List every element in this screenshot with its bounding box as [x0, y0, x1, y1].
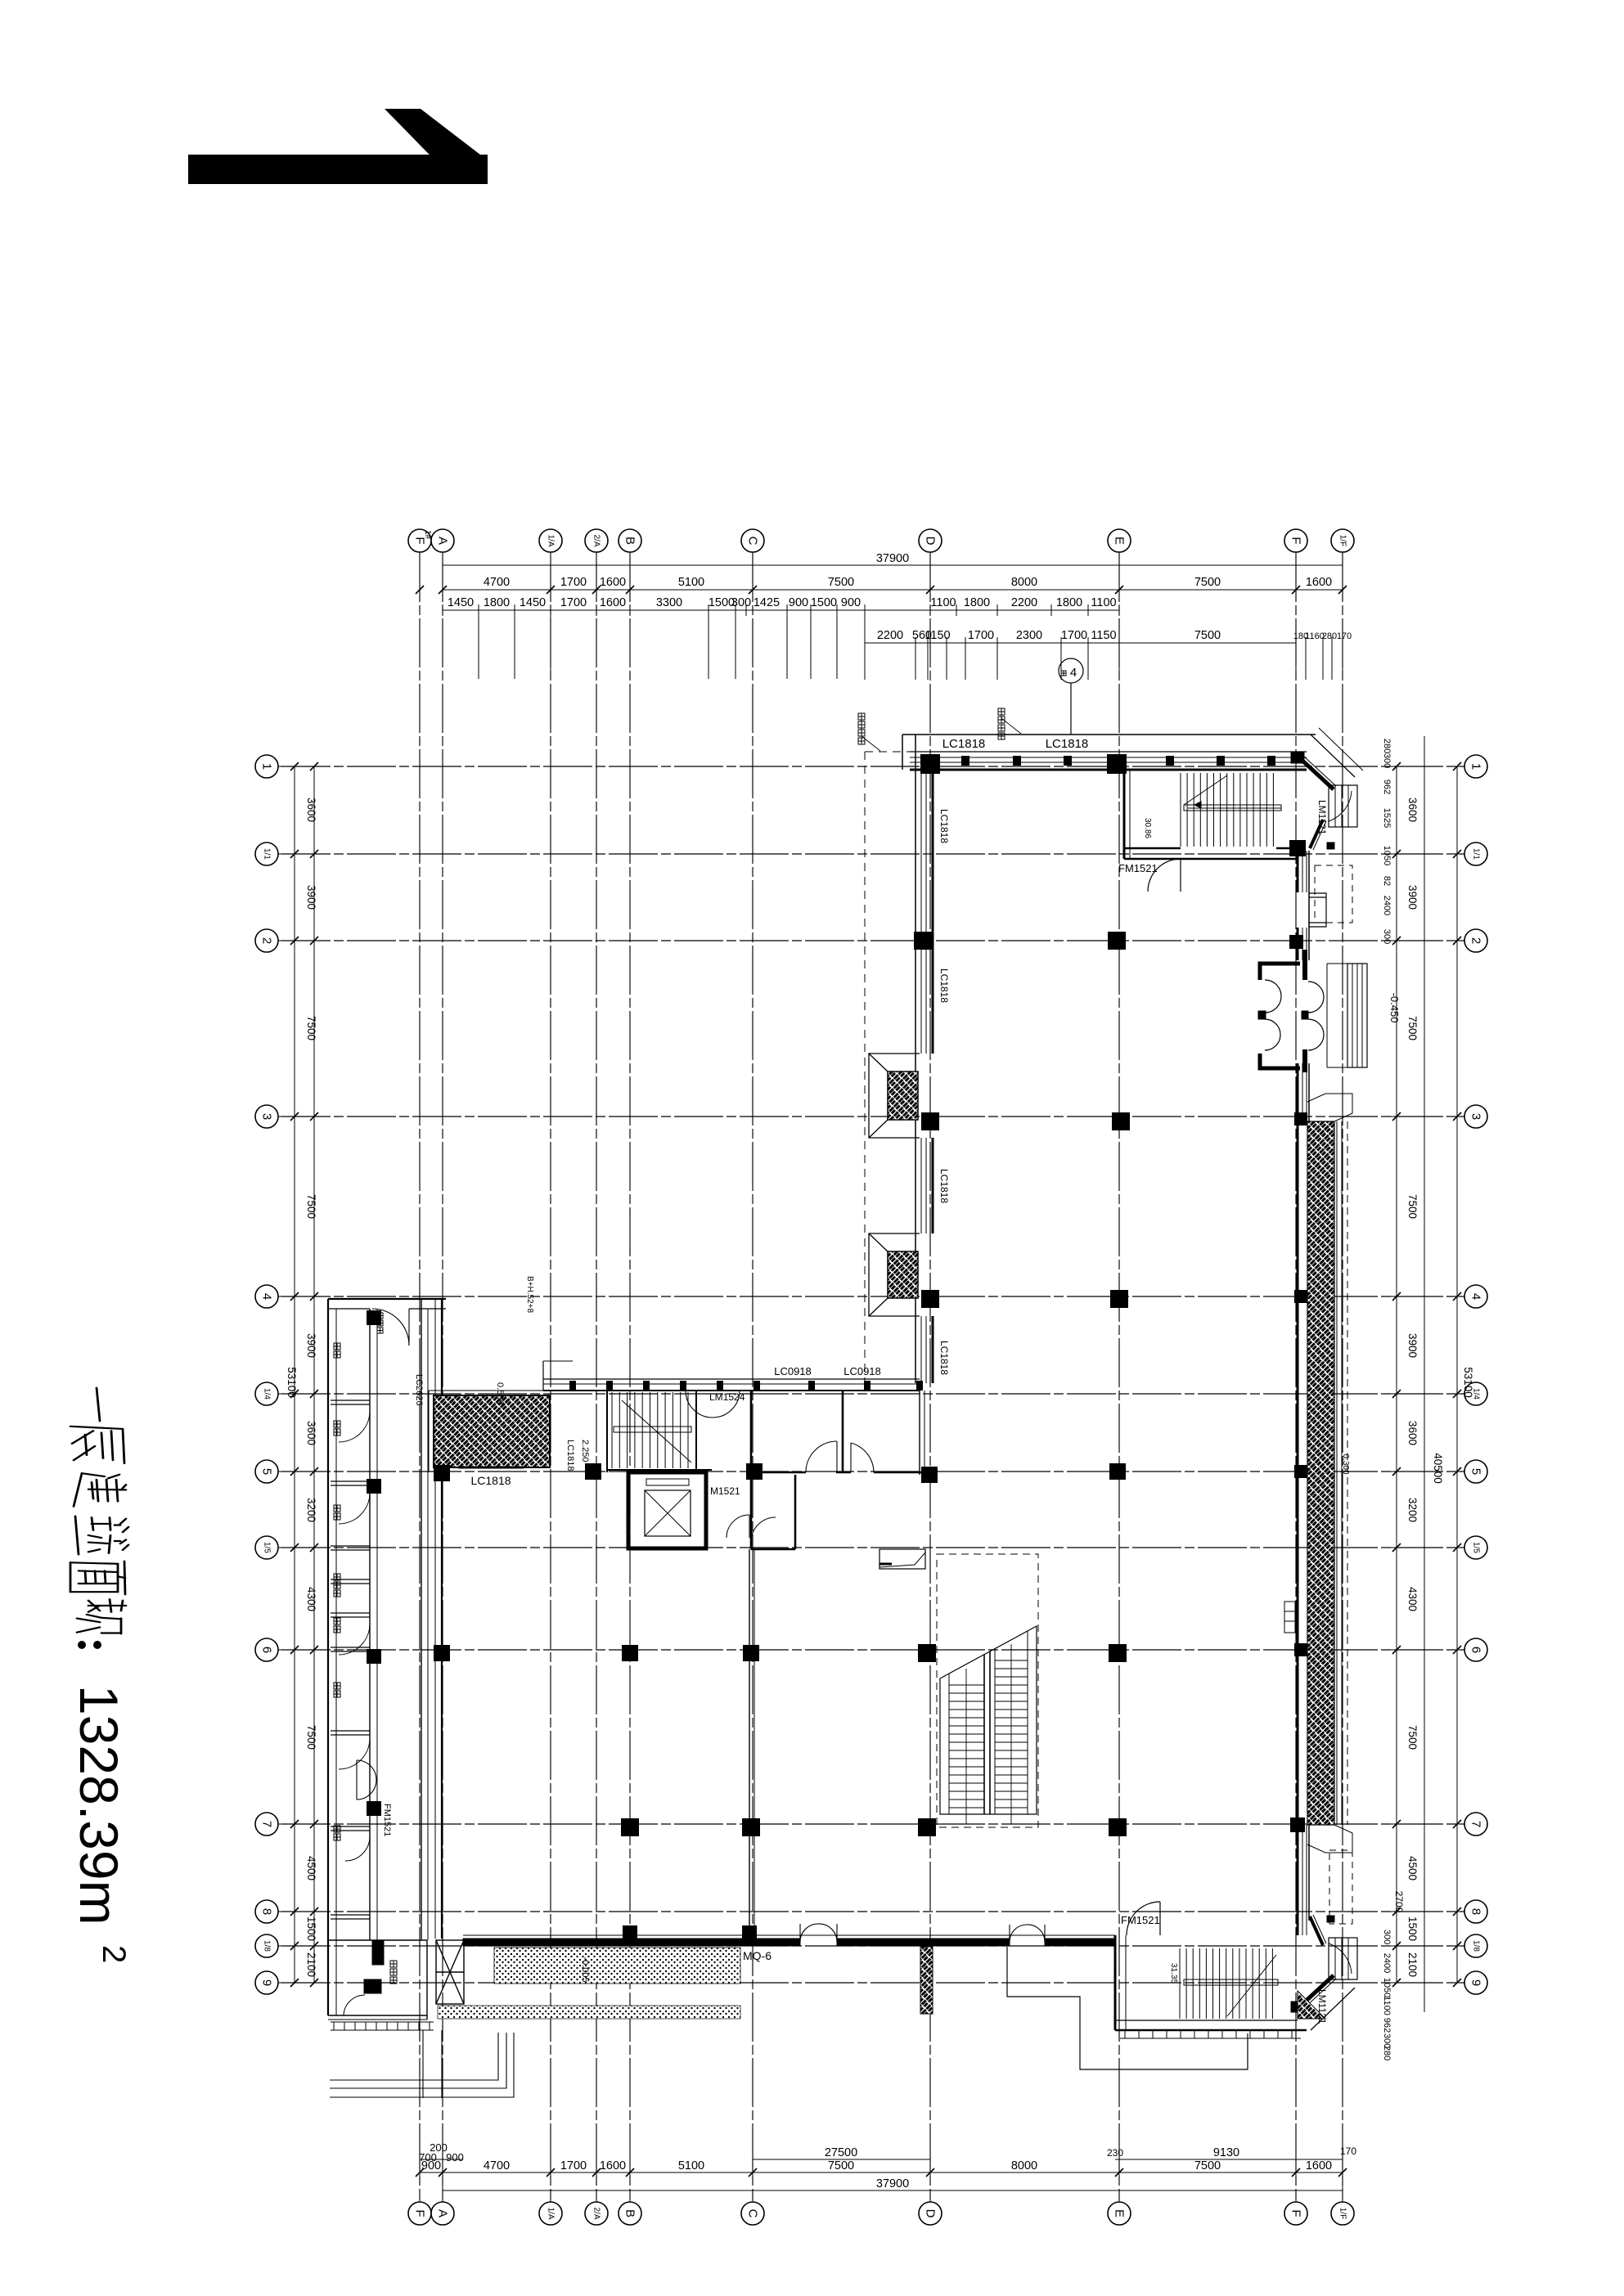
svg-text:9130: 9130 [1213, 2146, 1239, 2159]
svg-text:962: 962 [1382, 2018, 1392, 2033]
svg-text:1328.39m: 1328.39m [69, 1685, 129, 1925]
svg-text:3900: 3900 [1406, 1333, 1419, 1358]
svg-text:1#: 1# [423, 530, 432, 540]
svg-text:7500: 7500 [828, 576, 854, 589]
svg-text:LM1121: LM1121 [1316, 800, 1328, 835]
svg-text:900: 900 [446, 2151, 464, 2163]
svg-text:7500: 7500 [1406, 1016, 1419, 1040]
svg-text:F: F [1289, 2209, 1303, 2217]
svg-text:7500: 7500 [305, 1725, 317, 1750]
svg-text:LC1818: LC1818 [470, 1474, 511, 1487]
svg-text:900: 900 [789, 596, 808, 609]
svg-text:1100: 1100 [1382, 1996, 1392, 2015]
svg-text:1100: 1100 [930, 596, 956, 609]
svg-text:1: 1 [1469, 763, 1483, 770]
svg-text:C: C [746, 537, 760, 546]
svg-text:3200: 3200 [1406, 1498, 1419, 1522]
svg-text:A: A [436, 537, 450, 545]
svg-text:37900: 37900 [876, 2177, 909, 2190]
svg-text:B: B [623, 2209, 637, 2217]
svg-text:1/8: 1/8 [263, 1940, 272, 1952]
svg-text:2: 2 [1469, 937, 1483, 944]
svg-text:1/F: 1/F [1338, 2208, 1347, 2219]
svg-text:27500: 27500 [825, 2146, 857, 2159]
svg-text:1050: 1050 [1382, 846, 1392, 865]
svg-text:1600: 1600 [1306, 2159, 1332, 2172]
svg-text:7500: 7500 [1406, 1194, 1419, 1219]
svg-text:1600: 1600 [600, 576, 626, 589]
svg-text:170: 170 [1337, 631, 1352, 641]
svg-text:1/A: 1/A [547, 534, 556, 546]
svg-text:1700: 1700 [560, 596, 587, 609]
svg-text:300: 300 [1382, 753, 1392, 768]
svg-text:4500: 4500 [305, 1856, 317, 1880]
svg-text:B: B [623, 537, 637, 545]
svg-text:1: 1 [260, 763, 274, 770]
svg-text:6: 6 [260, 1647, 274, 1653]
svg-text:8000: 8000 [1011, 576, 1037, 589]
svg-text:4700: 4700 [484, 576, 510, 589]
svg-text:1525: 1525 [1382, 808, 1392, 828]
svg-text:4: 4 [260, 1293, 274, 1300]
svg-text:-0.005: -0.005 [580, 1957, 590, 1982]
svg-text:2: 2 [96, 1945, 132, 1963]
svg-text:LC1818: LC1818 [565, 1440, 575, 1472]
svg-text:3600: 3600 [305, 798, 317, 822]
svg-text:1050: 1050 [1382, 1978, 1392, 1997]
svg-text:FM1521: FM1521 [382, 1804, 392, 1836]
svg-text:E: E [1113, 537, 1127, 545]
svg-text:300: 300 [1382, 929, 1392, 944]
svg-text:7500: 7500 [305, 1194, 317, 1219]
svg-text:LC0918: LC0918 [774, 1365, 812, 1377]
svg-text:1100: 1100 [1091, 596, 1116, 609]
svg-text:M1521: M1521 [710, 1485, 740, 1497]
svg-text:MQ-6: MQ-6 [743, 1949, 772, 1962]
svg-text:37900: 37900 [876, 552, 909, 565]
svg-text:7500: 7500 [828, 2159, 854, 2172]
svg-text:7: 7 [1469, 1821, 1483, 1827]
svg-text:4300: 4300 [305, 1587, 317, 1611]
svg-text:2: 2 [260, 937, 274, 944]
svg-text:280: 280 [1322, 631, 1337, 641]
svg-text:3900: 3900 [1406, 885, 1419, 910]
svg-text:1/8: 1/8 [1472, 1940, 1481, 1952]
svg-text:7: 7 [260, 1821, 274, 1827]
svg-text:9: 9 [1469, 1979, 1483, 1986]
svg-text:4700: 4700 [484, 2159, 510, 2172]
svg-text:1700: 1700 [560, 2159, 587, 2172]
svg-text:300: 300 [731, 596, 751, 609]
svg-text:A: A [436, 2209, 450, 2217]
svg-text:LM1524: LM1524 [709, 1391, 745, 1403]
svg-text:F: F [413, 2209, 427, 2217]
svg-text:LC1818: LC1818 [942, 737, 986, 751]
svg-text:280: 280 [1382, 739, 1392, 753]
svg-text:FM1521: FM1521 [1121, 1914, 1160, 1926]
svg-text:3: 3 [260, 1113, 274, 1120]
svg-text:1/1: 1/1 [263, 848, 272, 860]
svg-text:5100: 5100 [678, 576, 704, 589]
svg-text:1800: 1800 [964, 596, 990, 609]
svg-text:1/4: 1/4 [263, 1388, 272, 1400]
svg-text:D: D [924, 537, 938, 546]
svg-text:1450: 1450 [520, 596, 546, 609]
svg-text:LC1818: LC1818 [938, 1169, 950, 1203]
svg-text:D: D [924, 2209, 938, 2218]
svg-text:2100: 2100 [1406, 1952, 1419, 1977]
svg-text:LM1121: LM1121 [1316, 1989, 1328, 2024]
svg-text:4500: 4500 [1406, 1856, 1419, 1880]
svg-text:962: 962 [1382, 780, 1392, 794]
svg-text:2/A: 2/A [592, 2207, 601, 2219]
svg-text:1425: 1425 [754, 596, 780, 609]
svg-text:53100: 53100 [1462, 1367, 1474, 1398]
svg-text:0.500: 0.500 [495, 1382, 505, 1405]
svg-text:5: 5 [260, 1468, 274, 1475]
svg-text:LC0918: LC0918 [843, 1365, 881, 1377]
svg-text:2/A: 2/A [592, 534, 601, 546]
svg-text:3300: 3300 [656, 596, 682, 609]
svg-text:6: 6 [1469, 1647, 1483, 1653]
svg-text:1/5: 1/5 [1472, 1542, 1481, 1553]
svg-text:7500: 7500 [305, 1016, 317, 1040]
svg-text:1600: 1600 [600, 596, 626, 609]
svg-text:900: 900 [841, 596, 861, 609]
svg-text:-0.450: -0.450 [1388, 993, 1401, 1023]
svg-text:40500: 40500 [1432, 1453, 1444, 1484]
svg-text:8: 8 [260, 1908, 274, 1915]
svg-text:LC1818: LC1818 [938, 1341, 950, 1375]
svg-text:7500: 7500 [1194, 2159, 1221, 2172]
svg-text:2400: 2400 [1382, 1953, 1392, 1973]
svg-text:LC2626: LC2626 [414, 1374, 424, 1406]
svg-text:7500: 7500 [1194, 576, 1221, 589]
svg-text:2200: 2200 [877, 629, 903, 642]
svg-text:F: F [1289, 537, 1303, 544]
svg-text:C: C [746, 2209, 760, 2218]
svg-text:3900: 3900 [305, 885, 317, 910]
svg-text:31.35: 31.35 [1169, 1963, 1178, 1984]
svg-text:900: 900 [421, 2159, 441, 2172]
svg-text:2100: 2100 [305, 1952, 317, 1977]
svg-text:3200: 3200 [305, 1498, 317, 1522]
svg-text:8000: 8000 [1011, 2159, 1037, 2172]
svg-text:4: 4 [1469, 1293, 1483, 1300]
svg-text:3900: 3900 [305, 1333, 317, 1358]
svg-text:4300: 4300 [1406, 1587, 1419, 1611]
svg-text:3600: 3600 [305, 1421, 317, 1445]
svg-text:3600: 3600 [1406, 1421, 1419, 1445]
svg-text:1/F: 1/F [1338, 535, 1347, 546]
svg-text:4: 4 [1070, 666, 1077, 680]
svg-text:280: 280 [1382, 2046, 1392, 2060]
svg-text:2400: 2400 [1382, 896, 1392, 915]
svg-text:1600: 1600 [600, 2159, 626, 2172]
svg-text:2200: 2200 [1011, 596, 1037, 609]
svg-text:7500: 7500 [1406, 1725, 1419, 1750]
svg-text:1150: 1150 [1091, 629, 1116, 642]
svg-text:LC1818: LC1818 [938, 809, 950, 843]
svg-text:1500: 1500 [811, 596, 837, 609]
svg-text:1/A: 1/A [547, 2207, 556, 2219]
svg-text:E: E [1113, 2209, 1127, 2217]
svg-text:170: 170 [1340, 2145, 1356, 2157]
svg-text:9: 9 [260, 1979, 274, 1986]
svg-text:1800: 1800 [1056, 596, 1082, 609]
svg-text:1500: 1500 [305, 1916, 317, 1941]
svg-text:0.300: 0.300 [1341, 1454, 1350, 1474]
svg-text:230: 230 [1107, 2147, 1123, 2159]
svg-text:82: 82 [1382, 876, 1392, 886]
svg-text:7500: 7500 [1194, 629, 1221, 642]
svg-text:5100: 5100 [678, 2159, 704, 2172]
svg-text:LC1818: LC1818 [1046, 737, 1089, 751]
svg-text:1700: 1700 [968, 629, 994, 642]
svg-text:3600: 3600 [1406, 798, 1419, 822]
svg-text:1450: 1450 [448, 596, 474, 609]
svg-text:30.86: 30.86 [1143, 818, 1152, 838]
svg-text:2300: 2300 [1016, 629, 1042, 642]
svg-text:1700: 1700 [1061, 629, 1087, 642]
svg-text:FM1521: FM1521 [1118, 862, 1158, 874]
svg-text:1600: 1600 [1306, 576, 1332, 589]
svg-text:8: 8 [1469, 1908, 1483, 1915]
svg-text:1700: 1700 [560, 576, 587, 589]
svg-text:1150: 1150 [924, 629, 950, 642]
svg-text:1/5: 1/5 [263, 1542, 272, 1553]
svg-text:LC1818: LC1818 [938, 968, 950, 1003]
svg-text:5: 5 [1469, 1468, 1483, 1475]
svg-text:300: 300 [1382, 1930, 1392, 1944]
svg-text:3: 3 [1469, 1113, 1483, 1120]
svg-text:1/1: 1/1 [1472, 848, 1481, 860]
svg-text:1800: 1800 [484, 596, 510, 609]
svg-text:B+H.52+8: B+H.52+8 [525, 1276, 534, 1313]
svg-text:2.250: 2.250 [580, 1440, 590, 1463]
svg-text:1500: 1500 [1406, 1916, 1419, 1941]
